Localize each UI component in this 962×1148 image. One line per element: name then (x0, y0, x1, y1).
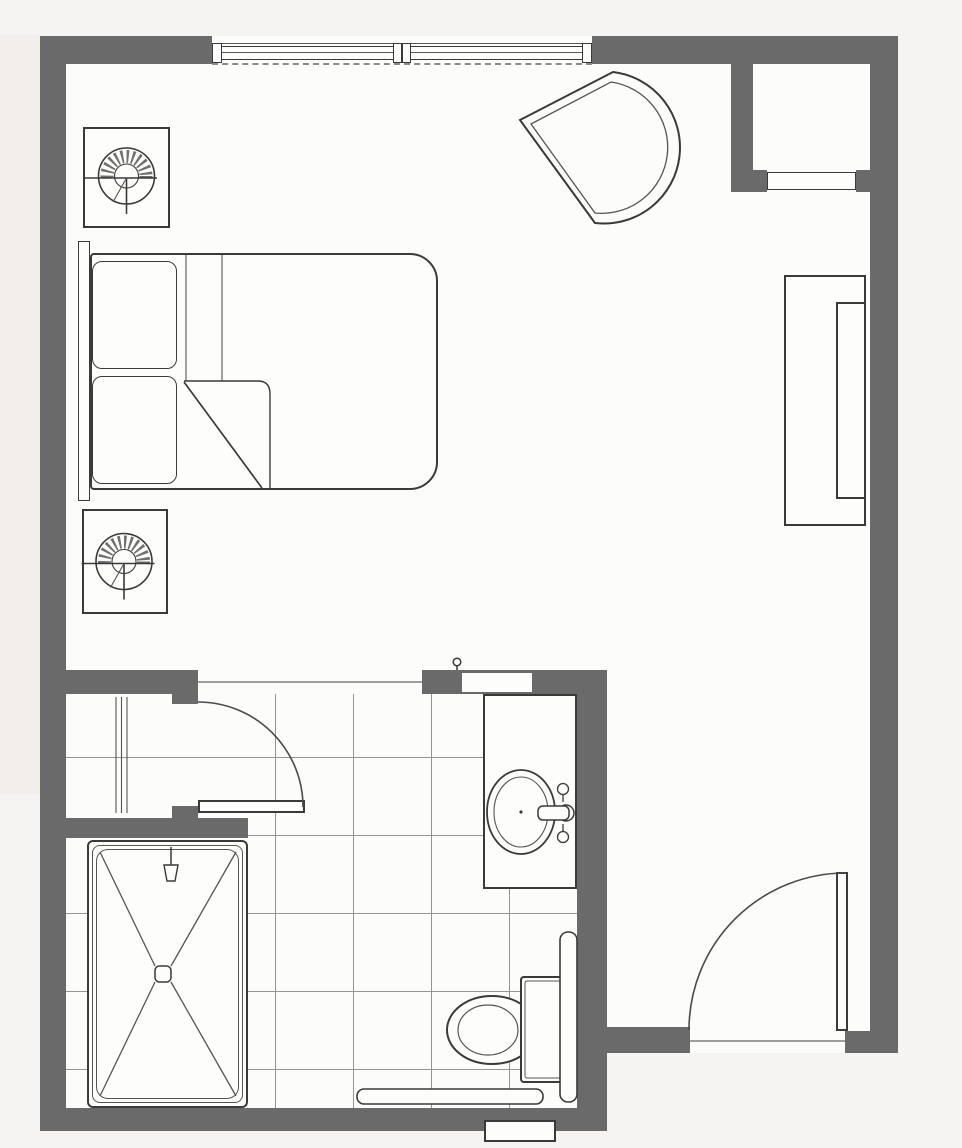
hot-handle (558, 784, 569, 795)
toilet (447, 977, 567, 1082)
faucet-lever (538, 806, 569, 820)
grab-bar-horizontal (357, 1089, 543, 1104)
shower-internals (100, 847, 236, 1096)
robe-hook-icon (453, 658, 461, 670)
sink (487, 770, 574, 854)
shower-head (164, 865, 178, 881)
lamp-icon (84, 148, 159, 214)
floor-plan (0, 0, 962, 1148)
bed-linens (184, 255, 270, 488)
lounge-chair (520, 72, 680, 224)
grab-bar-vertical (560, 932, 577, 1102)
lamp-icon (82, 534, 157, 600)
entry-door-arc (689, 873, 846, 1030)
bathroom-door-arc (198, 702, 303, 807)
linework-overlay (0, 0, 962, 1148)
cold-handle (558, 832, 569, 843)
shower-drain (155, 966, 171, 982)
linen-shelving (116, 697, 127, 813)
